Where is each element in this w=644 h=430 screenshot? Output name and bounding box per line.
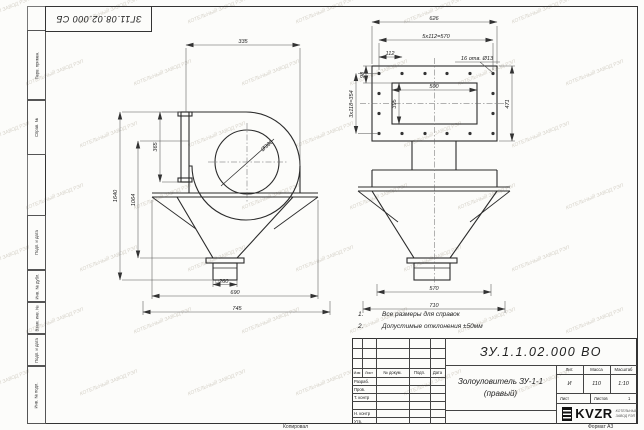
dim-471: 471 (505, 99, 511, 108)
doc-number: ЗУ.1.1.02.000 ВО (445, 338, 637, 365)
tb-line (445, 410, 556, 411)
tb-row-approved: Утв. (354, 419, 362, 424)
tb-line (352, 393, 445, 394)
sheets-label: Листов (594, 396, 608, 401)
sheets-value: 1 (628, 396, 630, 401)
dim-1064: 1064 (131, 194, 137, 206)
tb-row-developed: Разраб. (354, 379, 369, 384)
lit-label: Лит. (556, 365, 583, 374)
dim-570: 570 (429, 286, 439, 292)
drawing-sheet: КОТЕЛЬНЫЙ ЗАВОД РЭПКОТЕЛЬНЫЙ ЗАВОД РЭПКО… (0, 0, 644, 430)
tb-line (590, 393, 591, 403)
holes-note: 16 отв. Ø13 (461, 56, 494, 62)
tb-line (352, 401, 445, 402)
tb-line (352, 348, 445, 349)
note-1-text: Все размеры для справок (382, 311, 460, 318)
dim-710: 710 (429, 303, 439, 309)
tb-col-list: Лист (362, 368, 376, 377)
dim-dia-380: Ø380 (259, 139, 275, 154)
front-view (358, 66, 510, 280)
tb-line (556, 393, 637, 394)
front-view-dim-labels: 626 5x112=570 112 16 отв. Ø13 98 3x118=3… (349, 16, 511, 309)
dim-outlet-260: □260 (216, 279, 230, 285)
tb-col-sign: Подп. (409, 368, 430, 377)
tb-line (352, 409, 445, 410)
tb-line (409, 338, 410, 424)
dim-395: 395 (392, 98, 398, 108)
tb-row-ncontrol: Н. контр (354, 411, 370, 416)
tb-line (376, 338, 377, 424)
dim-335: 335 (238, 39, 248, 45)
tb-line (352, 358, 445, 359)
note-2-text: Допустимые отклонения ±50мм (382, 323, 483, 330)
product-name-line1: Золоуловитель ЗУ-1-1 (458, 376, 543, 388)
scale-label: Масштаб (610, 365, 637, 374)
dim-500: 500 (429, 84, 439, 90)
footer-format: Формат A3 (588, 424, 613, 430)
dim-5x112: 5x112=570 (422, 34, 450, 40)
lit-value: И (556, 374, 583, 393)
kvzr-logo-sub2: ЗАВОД РЭП (616, 414, 637, 419)
dim-745: 745 (232, 306, 242, 312)
tb-row-tcontrol: Т. контр (354, 395, 369, 400)
scale-value: 1:10 (610, 374, 637, 393)
mass-label: Масса (583, 365, 610, 374)
sheet-label: Лист (560, 396, 569, 401)
dim-98: 98 (360, 71, 366, 78)
dim-3x118: 3x118=354 (349, 90, 355, 117)
note-1-number: 1. (358, 311, 363, 318)
tb-line (352, 385, 445, 386)
dim-365: 365 (153, 141, 159, 151)
note-2-number: 2. (358, 323, 363, 330)
dim-690: 690 (230, 290, 240, 296)
tb-line (352, 417, 445, 418)
front-view-centerlines (360, 58, 509, 285)
mass-value: 110 (583, 374, 610, 393)
dim-1640: 1640 (113, 189, 119, 202)
tb-line (352, 377, 445, 378)
side-view (152, 112, 318, 280)
kvzr-logo-icon (562, 407, 572, 421)
dim-626: 626 (429, 16, 439, 22)
tb-row-checked: Пров. (354, 387, 365, 392)
kvzr-logo-text: KVZR (575, 406, 612, 421)
side-view-dim-labels: 335 365 1640 1064 Ø380 □260 690 745 (113, 39, 275, 312)
tb-col-izm: Изм (352, 368, 362, 377)
tb-col-date: Дата (430, 368, 445, 377)
kvzr-logo-subtext: КОТЕЛЬНЫЙ ЗАВОД РЭП (616, 409, 637, 419)
tb-line (430, 338, 431, 424)
tb-col-doc: № докум. (376, 368, 409, 377)
kvzr-logo-sub1: КОТЕЛЬНЫЙ (616, 409, 637, 414)
product-name: Золоуловитель ЗУ-1-1 (правый) (445, 365, 556, 410)
product-name-line2: (правый) (484, 388, 517, 400)
dim-112: 112 (386, 51, 396, 57)
footer-copied: Копировал (283, 424, 308, 430)
company-logo: KVZR КОТЕЛЬНЫЙ ЗАВОД РЭП (556, 403, 637, 424)
